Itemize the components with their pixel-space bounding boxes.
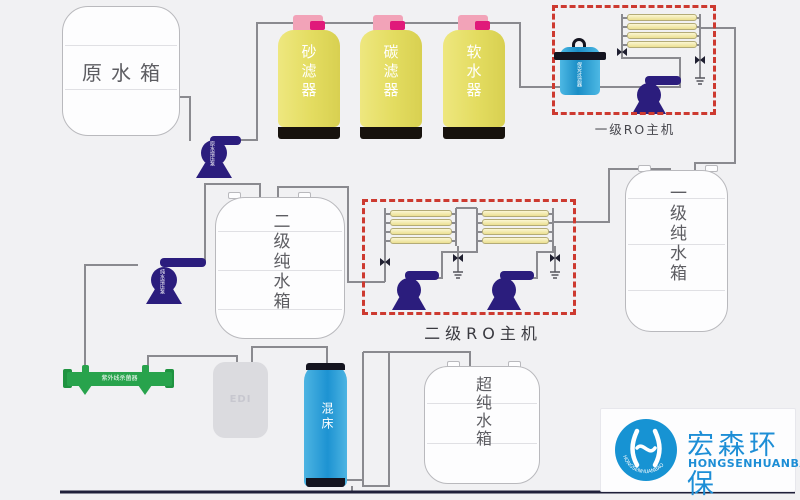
membrane-tube <box>482 237 549 244</box>
pipe-mixedbed-loop <box>363 352 389 486</box>
ro1-label: 一级RO主机 <box>572 119 698 138</box>
membrane-tube <box>482 228 549 235</box>
edi-label: EDI <box>213 362 268 438</box>
transfer-pump <box>146 258 206 304</box>
raw-pump-label: 原水增压泵 <box>209 141 215 167</box>
pump-horn <box>160 258 206 267</box>
tank-line <box>628 290 725 291</box>
uv-foot <box>138 385 152 395</box>
softener-base <box>443 127 505 139</box>
membrane-tube <box>482 210 549 217</box>
raw-water-tank-label: 原水箱 <box>63 57 179 86</box>
pipe-transferpump-suction <box>85 265 138 372</box>
ultra-pure-tank-label: 超纯水箱 <box>470 376 494 448</box>
membrane-tube <box>390 228 452 235</box>
primary-pure-tank: 一级纯水箱 <box>625 170 728 332</box>
sand-filter-base <box>278 127 340 139</box>
sand-filter-valve <box>310 21 325 30</box>
pipe-rawtank-to-pump <box>180 97 190 141</box>
logo-card: HONGSENHUANBAO 宏森环保 HONGSENHUANBAO <box>600 408 796 492</box>
softener-valve <box>475 21 490 30</box>
cartridge-filter-label: 保安过滤器 <box>576 62 582 92</box>
ro2-label: 二级RO主机 <box>398 320 568 344</box>
membrane-tube <box>390 210 452 217</box>
mixed-bed-bottom-cap <box>306 478 345 487</box>
carbon-filter-valve <box>390 21 405 30</box>
edi-module: EDI <box>213 362 268 438</box>
softener: 软水器 <box>443 30 505 127</box>
cartridge-filter-band <box>554 52 606 60</box>
membrane-tube <box>627 32 697 39</box>
secondary-pure-tank: 二级纯水箱 <box>215 197 345 339</box>
softener-label: 软水器 <box>464 44 485 101</box>
tank-line <box>65 89 177 90</box>
mixed-bed-top-cap <box>306 363 345 370</box>
membrane-tube <box>390 237 452 244</box>
ro2-membrane-bank-2 <box>482 210 549 246</box>
membrane-tube <box>627 14 697 21</box>
carbon-filter-base <box>360 127 422 139</box>
ro2-membrane-bank-1 <box>390 210 452 246</box>
logo-mark: HONGSENHUANBAO <box>614 418 678 482</box>
uv-sterilizer-label: 紫外线杀菌器 <box>67 372 172 386</box>
membrane-tube <box>627 41 697 48</box>
logo-en-text: HONGSENHUANBAO <box>688 457 800 470</box>
secondary-pure-tank-label: 二级纯水箱 <box>268 212 293 312</box>
ro1-membrane-bank <box>627 14 697 50</box>
transfer-pump-label: 纯水增压泵 <box>159 269 165 295</box>
membrane-tube <box>627 23 697 30</box>
mixed-bed-label: 混床 <box>319 402 336 432</box>
tank-line <box>65 45 177 46</box>
sand-filter-label: 砂滤器 <box>299 44 320 101</box>
uv-sterilizer: 紫外线杀菌器 <box>67 372 172 386</box>
primary-pure-tank-label: 一级纯水箱 <box>664 184 689 284</box>
membrane-tube <box>390 219 452 226</box>
ultra-pure-tank: 超纯水箱 <box>424 366 540 484</box>
raw-water-pump <box>196 136 241 178</box>
raw-water-tank: 原水箱 <box>62 6 180 136</box>
process-diagram: 原水箱 原水增压泵 纯水增压泵 砂滤器 碳滤器 软水器 保安过滤器 一级RO主机 <box>0 0 800 500</box>
carbon-filter-label: 碳滤器 <box>381 44 402 101</box>
uv-foot <box>78 385 92 395</box>
membrane-tube <box>482 219 549 226</box>
sand-filter: 砂滤器 <box>278 30 340 127</box>
carbon-filter: 碳滤器 <box>360 30 422 127</box>
